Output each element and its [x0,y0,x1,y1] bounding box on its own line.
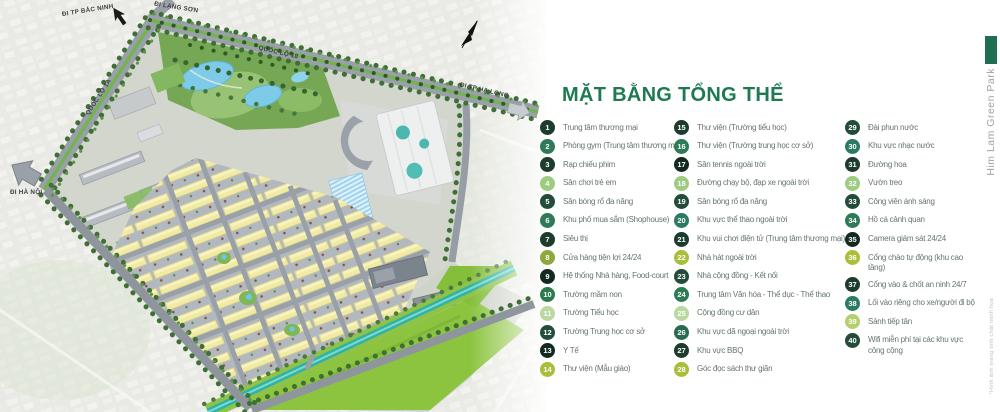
legend-item-label: Góc đọc sách thư giãn [697,364,772,374]
legend-item-number-badge: 33 [845,194,860,209]
legend-item-number-badge: 34 [845,213,860,228]
legend-item-number-badge: 21 [674,232,689,247]
legend-item-label: Cộng đồng cư dân [697,308,759,318]
legend-item-number-badge: 11 [540,306,555,321]
legend-item-label: Sân tennis ngoài trời [697,160,765,170]
legend-item: 38 Lối vào riêng cho xe/người đi bộ [845,296,985,311]
legend-item-label: Cổng vào & chốt an ninh 24/7 [868,280,966,290]
legend-item-label: Wifi miễn phí tại các khu vực công cộng [868,335,980,356]
legend-item: 37 Cổng vào & chốt an ninh 24/7 [845,277,985,292]
legend-item-number-badge: 13 [540,343,555,358]
legend-item-label: Sân chơi trẻ em [563,178,616,188]
legend-item-label: Khu vực nhạc nước [868,141,934,151]
legend-item-label: Khu phố mua sắm (Shophouse) [563,215,669,225]
legend-item-label: Thư viện (Trường tiểu học) [697,123,787,133]
legend-item-label: Cửa hàng tiện lợi 24/24 [563,253,641,263]
legend-item: 10 Trường mầm non [540,287,672,302]
legend-item: 32 Vườn treo [845,176,985,191]
legend-item-label: Sân bóng rổ đa năng [697,197,767,207]
legend-item: 20 Khu vực thể thao ngoài trời [674,213,843,228]
legend-item-label: Lối vào riêng cho xe/người đi bộ [868,298,975,308]
legend-item-number-badge: 32 [845,176,860,191]
legend-item-label: Vườn treo [868,178,902,188]
brand-accent-bar [985,36,997,64]
legend-item: 29 Đài phun nước [845,120,985,135]
master-plan-page: ĐI TP BẮC NINH ĐI LẠNG SƠN QUỐC LỘ 1A QU… [0,0,1000,412]
legend-item-number-badge: 5 [540,194,555,209]
legend-item: 1 Trung tâm thương mại [540,120,672,135]
legend-item-number-badge: 23 [674,269,689,284]
legend-item-number-badge: 2 [540,139,555,154]
legend-item-number-badge: 39 [845,314,860,329]
legend-item: 25 Cộng đồng cư dân [674,306,843,321]
master-plan-map: ĐI TP BẮC NINH ĐI LẠNG SƠN QUỐC LỘ 1A QU… [0,0,546,412]
legend-item: 26 Khu vực dã ngoại ngoài trời [674,325,843,340]
legend-item-number-badge: 17 [674,157,689,172]
legend-item-label: Trường Tiểu học [563,308,618,318]
legend-item: 11 Trường Tiểu học [540,306,672,321]
legend-item: 33 Công viên ánh sáng [845,194,985,209]
brand-vertical-text: Him Lam Green Park [985,68,997,176]
legend-item-number-badge: 7 [540,232,555,247]
legend-item-label: Khu vui chơi điện tử (Trung tâm thương m… [697,234,845,244]
legend-item-number-badge: 15 [674,120,689,135]
legend-item: 36 Cổng chào tự động (khu cao tầng) [845,250,985,273]
legend-item: 35 Camera giám sát 24/24 [845,232,985,247]
legend-item-number-badge: 27 [674,343,689,358]
legend-item-label: Rạp chiếu phim [563,160,615,170]
legend-item: 18 Đường chạy bộ, đạp xe ngoài trời [674,176,843,191]
legend-item-number-badge: 38 [845,296,860,311]
legend-item-number-badge: 12 [540,325,555,340]
legend-item-label: Trường Trung học cơ sở [563,327,645,337]
legend-item-label: Hồ cá cảnh quan [868,215,925,225]
legend-item: 22 Nhà hát ngoài trời [674,250,843,265]
legend-item-number-badge: 19 [674,194,689,209]
legend-item-number-badge: 8 [540,250,555,265]
legend-item: 40 Wifi miễn phí tại các khu vực công cộ… [845,333,985,356]
legend-item: 12 Trường Trung học cơ sở [540,325,672,340]
legend-column-1: 1 Trung tâm thương mại 2 Phòng gym (Trun… [540,120,672,380]
legend-item-number-badge: 22 [674,250,689,265]
legend-item-number-badge: 10 [540,287,555,302]
legend-item-label: Sân bóng rổ đa năng [563,197,633,207]
legend-item-number-badge: 4 [540,176,555,191]
legend-item: 7 Siêu thị [540,232,672,247]
legend-item-label: Sảnh tiếp tân [868,317,912,327]
legend-item-number-badge: 18 [674,176,689,191]
map-fade [470,0,546,412]
legend-column-2: 15 Thư viện (Trường tiểu học) 16 Thư việ… [674,120,843,380]
legend-item-label: Thư viện (Mẫu giáo) [563,364,630,374]
legend-item-label: Khu vực thể thao ngoài trời [697,215,787,225]
legend-item: 16 Thư viện (Trường trung học cơ sở) [674,139,843,154]
legend-item: 2 Phòng gym (Trung tâm thương mại) [540,139,672,154]
legend-item-number-badge: 26 [674,325,689,340]
legend-item: 28 Góc đọc sách thư giãn [674,362,843,377]
legend-item-label: Trường mầm non [563,290,622,300]
legend-item-number-badge: 9 [540,269,555,284]
legend-item: 17 Sân tennis ngoài trời [674,157,843,172]
disclaimer-vertical-text: *Hình ảnh mang tính chất minh họa [989,298,995,394]
legend-item-label: Phòng gym (Trung tâm thương mại) [563,141,683,151]
legend-item: 39 Sảnh tiếp tân [845,314,985,329]
legend-item-number-badge: 31 [845,157,860,172]
legend-item-number-badge: 14 [540,362,555,377]
legend-item-label: Khu vực dã ngoại ngoài trời [697,327,789,337]
legend-item-number-badge: 6 [540,213,555,228]
legend-item-label: Cổng chào tự động (khu cao tầng) [868,253,980,274]
legend-item-number-badge: 29 [845,120,860,135]
legend-item-label: Đài phun nước [868,123,918,133]
legend-item-number-badge: 25 [674,306,689,321]
legend-column-3: 29 Đài phun nước 30 Khu vực nhạc nước 31… [845,120,985,360]
legend-item-label: Camera giám sát 24/24 [868,234,946,244]
legend-item-number-badge: 30 [845,139,860,154]
legend-item-number-badge: 1 [540,120,555,135]
legend-item-label: Nhà cộng đồng - Kết nối [697,271,778,281]
legend-item-number-badge: 16 [674,139,689,154]
legend-item-number-badge: 35 [845,232,860,247]
legend-item: 27 Khu vực BBQ [674,343,843,358]
legend-item-label: Trung tâm Văn hóa - Thể dục - Thể thao [697,290,830,300]
legend-item-label: Siêu thị [563,234,588,244]
legend-item: 14 Thư viện (Mẫu giáo) [540,362,672,377]
legend-item: 23 Nhà cộng đồng - Kết nối [674,269,843,284]
legend-item: 24 Trung tâm Văn hóa - Thể dục - Thể tha… [674,287,843,302]
legend-item: 5 Sân bóng rổ đa năng [540,194,672,209]
legend-item-label: Trung tâm thương mại [563,123,638,133]
legend-item: 34 Hồ cá cảnh quan [845,213,985,228]
legend-item: 13 Y Tế [540,343,672,358]
legend-item-number-badge: 37 [845,277,860,292]
legend-item: 9 Hệ thống Nhà hàng, Food-court [540,269,672,284]
legend-item: 21 Khu vui chơi điện tử (Trung tâm thươn… [674,232,843,247]
legend-item-label: Khu vực BBQ [697,346,743,356]
legend-item-label: Công viên ánh sáng [868,197,935,207]
legend-item: 3 Rạp chiếu phim [540,157,672,172]
legend-item-label: Y Tế [563,346,579,356]
legend-item-label: Thư viện (Trường trung học cơ sở) [697,141,813,151]
legend-item: 15 Thư viện (Trường tiểu học) [674,120,843,135]
legend-item-number-badge: 3 [540,157,555,172]
legend-item-number-badge: 20 [674,213,689,228]
legend-item-number-badge: 40 [845,333,860,348]
legend-title: MẶT BẰNG TỔNG THỂ [562,84,784,107]
legend-item-label: Hệ thống Nhà hàng, Food-court [563,271,668,281]
legend-item-number-badge: 36 [845,250,860,265]
legend-item: 6 Khu phố mua sắm (Shophouse) [540,213,672,228]
legend-item-label: Nhà hát ngoài trời [697,253,756,263]
legend-item-label: Đường hoa [868,160,907,170]
legend-item: 19 Sân bóng rổ đa năng [674,194,843,209]
road-label-ha-noi: ĐI HÀ NỘI [10,187,42,196]
legend-item-label: Đường chạy bộ, đạp xe ngoài trời [697,178,809,188]
legend-item-number-badge: 24 [674,287,689,302]
master-plan-svg: ĐI TP BẮC NINH ĐI LẠNG SƠN QUỐC LỘ 1A QU… [0,0,546,412]
legend-item: 8 Cửa hàng tiện lợi 24/24 [540,250,672,265]
legend-item: 4 Sân chơi trẻ em [540,176,672,191]
legend-item: 30 Khu vực nhạc nước [845,139,985,154]
legend-item-number-badge: 28 [674,362,689,377]
legend-item: 31 Đường hoa [845,157,985,172]
